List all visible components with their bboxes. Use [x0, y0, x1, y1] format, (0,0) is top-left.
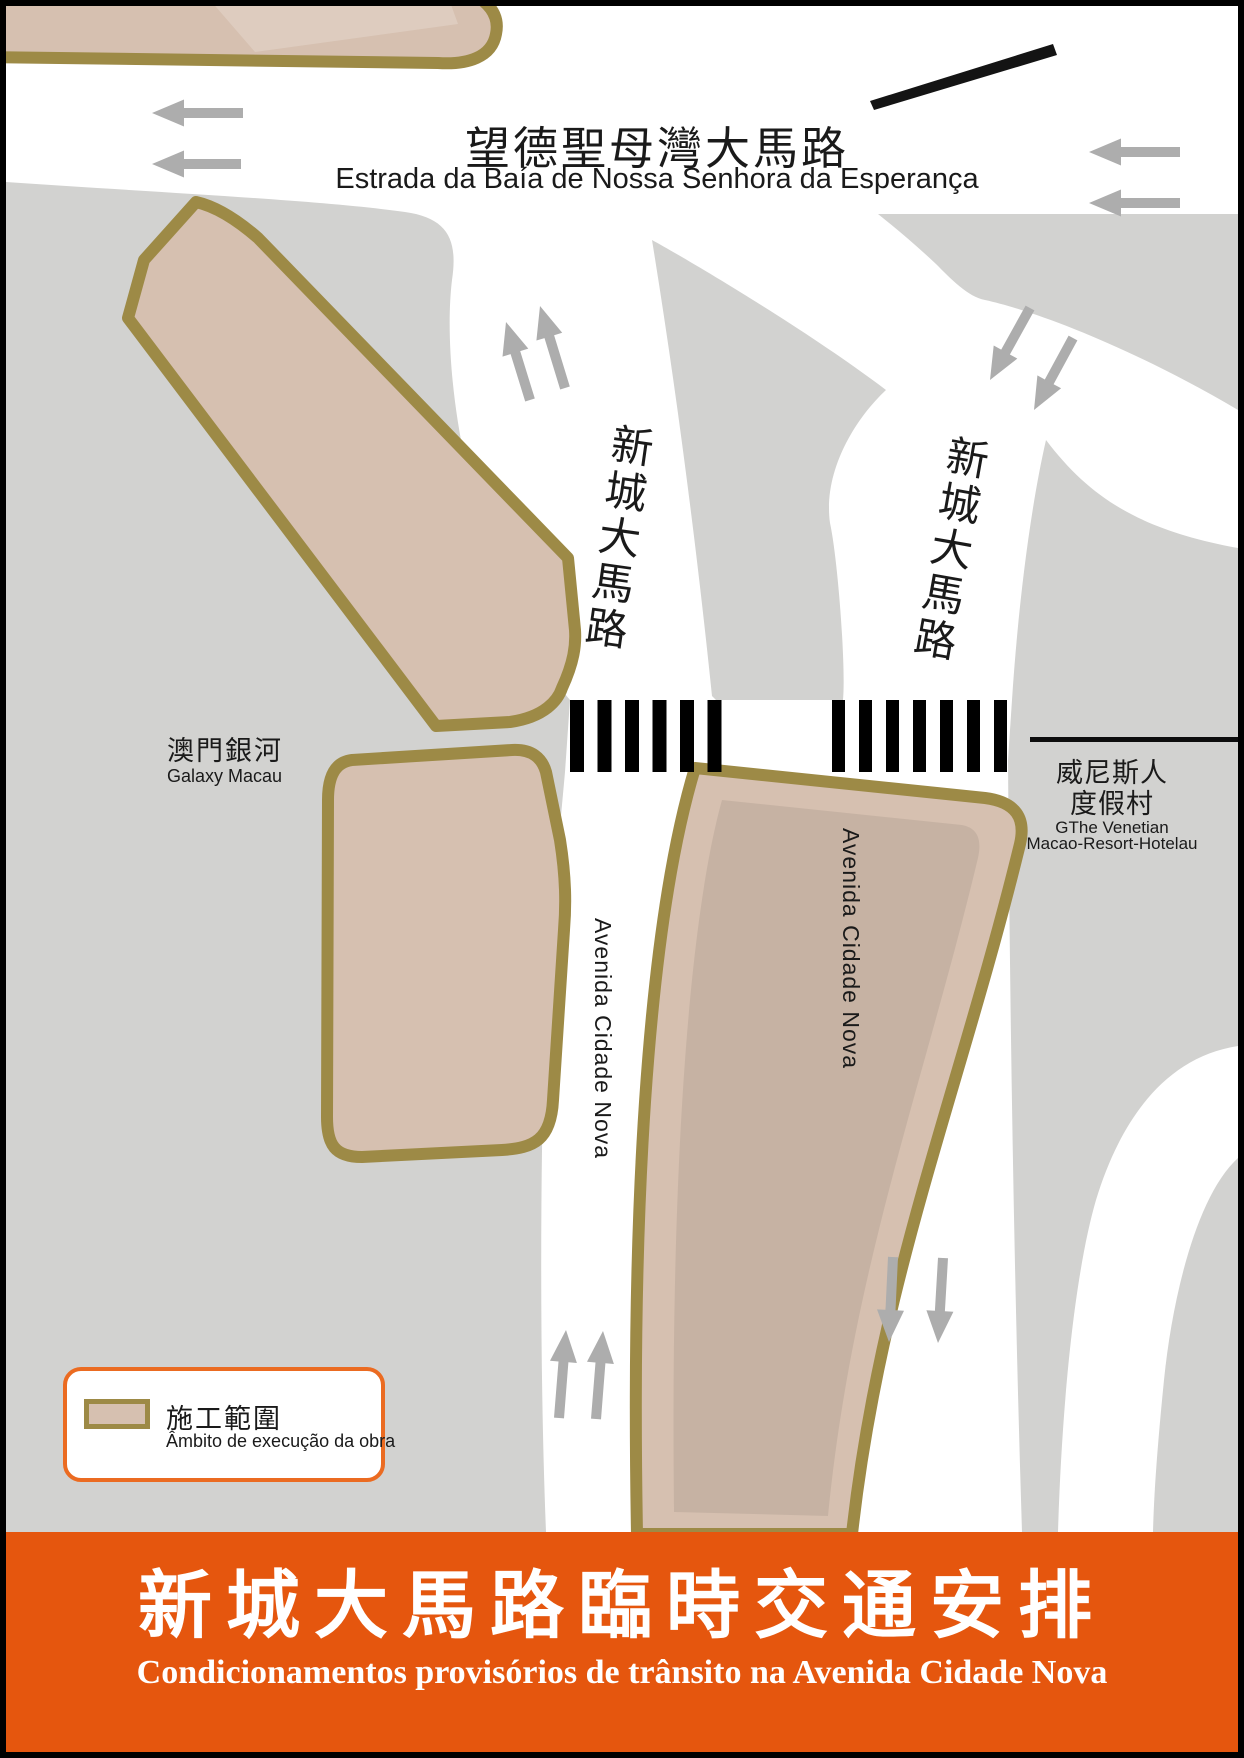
- road-map-graphic: [0, 0, 1244, 1758]
- legend-box: 施工範圍 Âmbito de execução da obra: [63, 1367, 385, 1482]
- crosswalk-bar: [598, 700, 612, 772]
- map-center-island: [652, 240, 886, 700]
- landmark-venetian-zh-line2: 度假村: [1002, 789, 1222, 820]
- direction-arrow-icon: [503, 322, 535, 402]
- crosswalk-bar: [653, 700, 667, 772]
- crosswalk-bar: [832, 700, 845, 772]
- direction-arrow-icon: [926, 1258, 953, 1343]
- direction-arrow-icon: [587, 1331, 614, 1419]
- map-block-top-right: [878, 214, 1238, 410]
- crosswalk-bar: [886, 700, 899, 772]
- banner-title-zh: 新城大馬路臨時交通安排: [6, 1566, 1238, 1646]
- direction-arrow-icon: [536, 306, 569, 390]
- crosswalk-bar: [913, 700, 926, 772]
- stop-line: [1030, 737, 1238, 742]
- construction-zone-lower-left: [327, 750, 565, 1157]
- crosswalk-bar: [708, 700, 722, 772]
- road-label-top-pt: Estrada da Baía de Nossa Senhora da Espe…: [227, 163, 1087, 196]
- landmark-galaxy-zh: 澳門銀河: [167, 729, 283, 768]
- map-block-bottom-right-corner: [1153, 1158, 1238, 1532]
- landmark-venetian-en-line2: Macao-Resort-Hotelau: [1002, 836, 1222, 852]
- title-banner: 新城大馬路臨時交通安排 Condicionamentos provisórios…: [6, 1532, 1238, 1752]
- road-label-avenida-left: Avenida Cidade Nova: [589, 918, 616, 1159]
- direction-arrow-icon: [1089, 190, 1180, 217]
- crosswalk-bar: [625, 700, 639, 772]
- legend-construction-swatch: [84, 1399, 150, 1429]
- direction-arrow-icon: [550, 1330, 577, 1418]
- road-edge-line: [870, 44, 1057, 110]
- traffic-notice-poster: 望德聖母灣大馬路 Estrada da Baía de Nossa Senhor…: [0, 0, 1244, 1758]
- direction-arrow-icon: [990, 306, 1034, 380]
- crosswalk-bar: [680, 700, 694, 772]
- landmark-galaxy-en: Galaxy Macau: [167, 766, 282, 787]
- direction-arrow-icon: [1089, 139, 1180, 166]
- banner-title-pt: Condicionamentos provisórios de trânsito…: [6, 1654, 1238, 1692]
- landmark-venetian: 威尼斯人 度假村 GThe Venetian Macao-Resort-Hote…: [1002, 758, 1222, 852]
- direction-arrow-icon: [152, 100, 243, 127]
- direction-arrow-icon: [1034, 336, 1077, 410]
- road-label-avenida-right: Avenida Cidade Nova: [837, 828, 864, 1069]
- crosswalk-bar: [859, 700, 872, 772]
- legend-label-pt: Âmbito de execução da obra: [166, 1431, 395, 1452]
- crosswalk-bar: [570, 700, 584, 772]
- crosswalk-bar: [940, 700, 953, 772]
- crosswalk-bar: [967, 700, 980, 772]
- landmark-venetian-zh-line1: 威尼斯人: [1002, 758, 1222, 789]
- zebra-crosswalk: [570, 700, 1007, 772]
